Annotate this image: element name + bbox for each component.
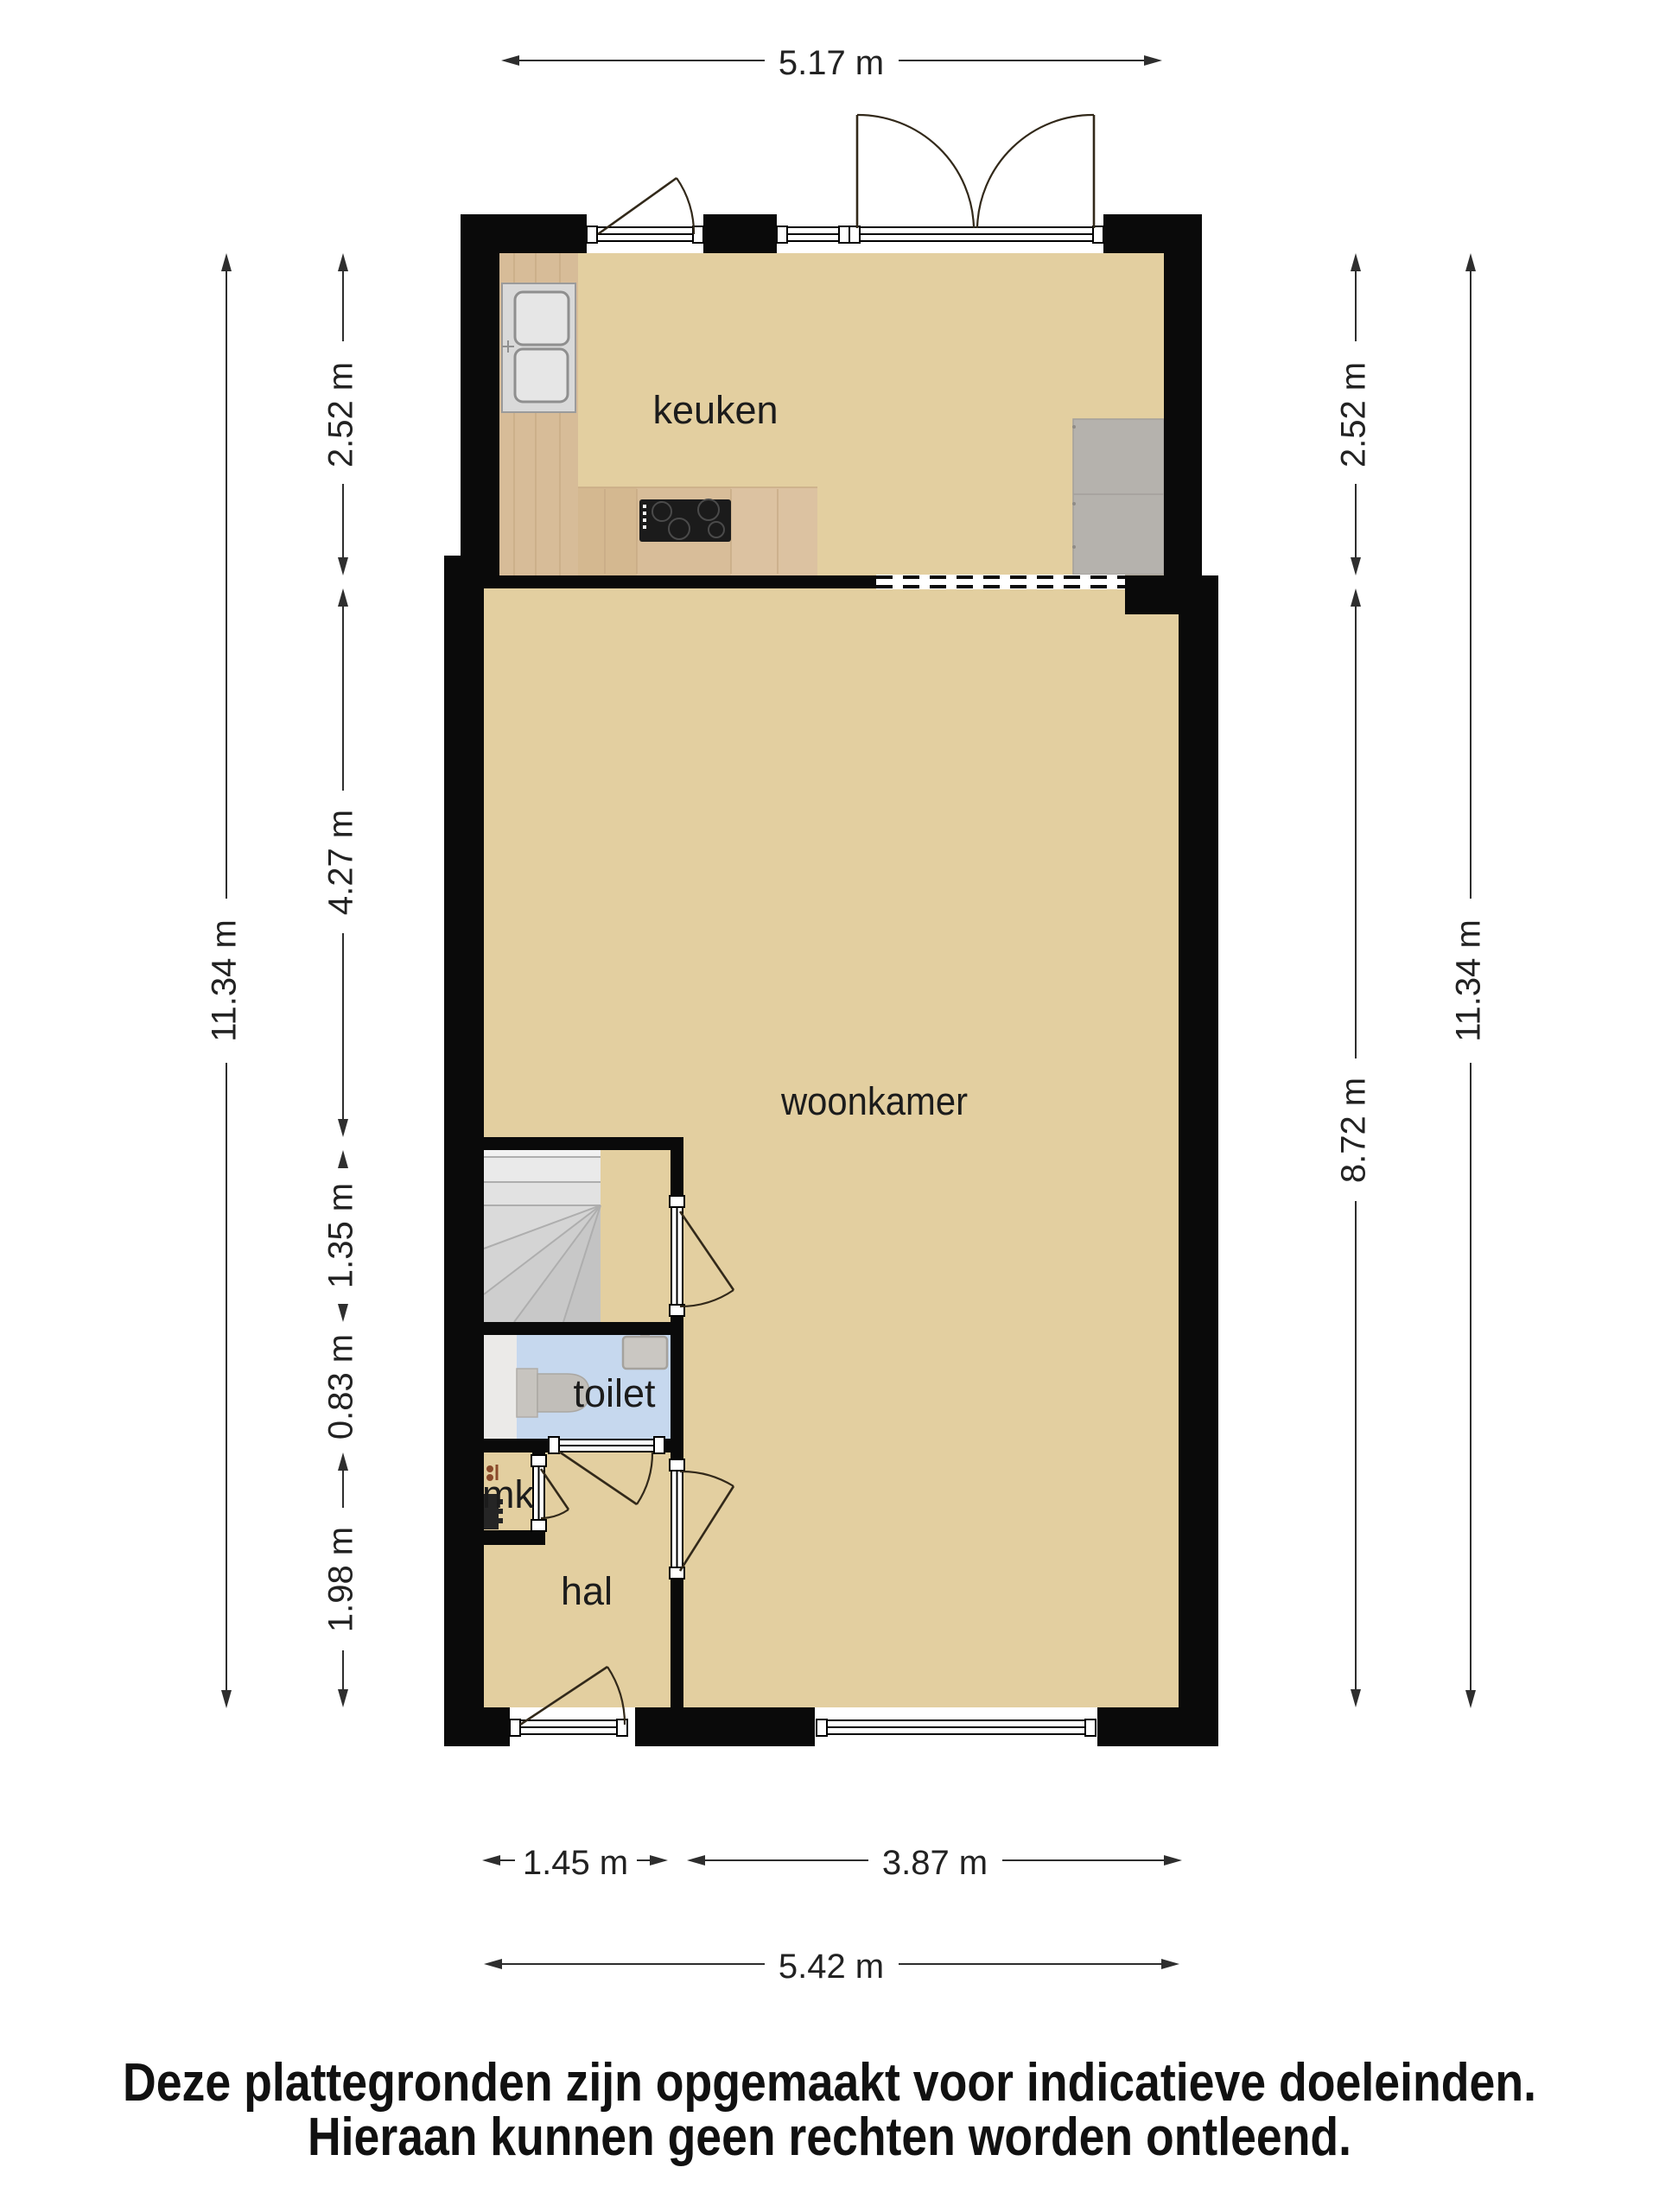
svg-text:toilet: toilet [573, 1371, 656, 1415]
svg-text:0.83 m: 0.83 m [322, 1334, 360, 1440]
svg-text:11.34 m: 11.34 m [206, 919, 244, 1042]
svg-text:mk: mk [482, 1472, 534, 1516]
svg-text:2.52 m: 2.52 m [1335, 362, 1373, 467]
svg-text:11.34 m: 11.34 m [1450, 919, 1488, 1042]
svg-text:5.17 m: 5.17 m [779, 44, 884, 82]
svg-text:1.35 m: 1.35 m [322, 1183, 360, 1288]
svg-text:woonkamer: woonkamer [780, 1079, 968, 1123]
svg-text:1.98 m: 1.98 m [322, 1527, 360, 1632]
svg-text:4.27 m: 4.27 m [322, 810, 360, 915]
svg-text:5.42 m: 5.42 m [779, 1948, 884, 1986]
svg-text:hal: hal [561, 1569, 613, 1613]
svg-text:3.87 m: 3.87 m [882, 1844, 988, 1882]
svg-text:2.52 m: 2.52 m [322, 362, 360, 467]
svg-text:Hieraan kunnen geen rechten wo: Hieraan kunnen geen rechten worden ontle… [308, 2107, 1351, 2167]
svg-text:8.72 m: 8.72 m [1335, 1077, 1373, 1183]
svg-text:Deze plattegronden zijn opgema: Deze plattegronden zijn opgemaakt voor i… [123, 2053, 1536, 2113]
svg-text:1.45 m: 1.45 m [523, 1844, 628, 1882]
svg-text:keuken: keuken [652, 388, 778, 432]
